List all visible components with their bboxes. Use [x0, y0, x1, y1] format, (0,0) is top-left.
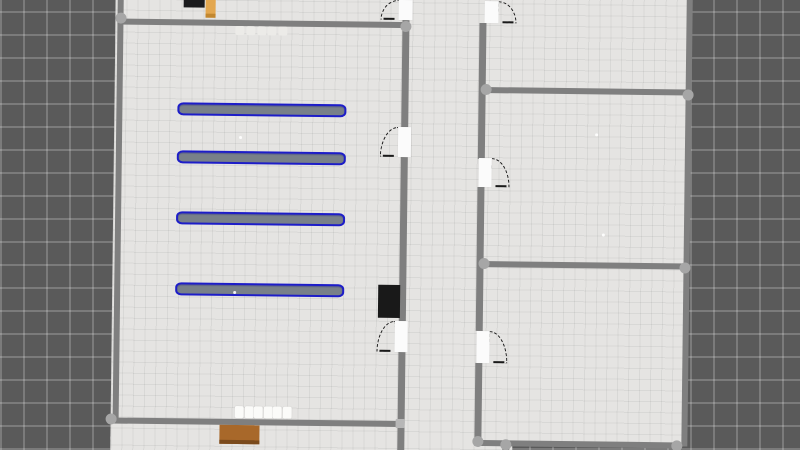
joint-div-mid-right [679, 262, 690, 273]
wood-table[interactable] [219, 425, 259, 444]
door-left-room-lower[interactable] [394, 321, 407, 352]
chair-item[interactable] [273, 406, 282, 418]
floor-speck [233, 291, 236, 294]
wall-corridor-left-c [397, 352, 405, 450]
counter-item[interactable] [267, 26, 276, 35]
floor-speck [239, 136, 242, 139]
joint-bottom-right [671, 440, 682, 450]
orange-plank[interactable] [206, 0, 216, 18]
joint-div-mid-left [478, 258, 489, 269]
shelf-row-3[interactable] [176, 211, 345, 226]
game-map-viewport[interactable] [0, 0, 800, 450]
counter-item[interactable] [246, 26, 255, 35]
chair-item[interactable] [254, 406, 263, 418]
shelf-row-2[interactable] [177, 150, 346, 165]
shelf-row-4[interactable] [175, 282, 344, 297]
chair-item[interactable] [283, 407, 292, 419]
joint-bottom-stub [500, 439, 511, 450]
joint-top-left [115, 13, 126, 24]
joint-t-junction [396, 419, 405, 428]
wall-corridor-left-a [401, 20, 409, 127]
counter-item[interactable] [278, 26, 287, 35]
door-corridor-top-left[interactable] [399, 0, 413, 20]
door-right-room-lower[interactable] [476, 331, 489, 363]
wall-corridor-right-c [474, 363, 482, 442]
chair-item[interactable] [235, 406, 244, 418]
dark-doorway[interactable] [378, 285, 400, 318]
chair-item[interactable] [264, 406, 273, 418]
floor-speck [595, 133, 598, 136]
door-corridor-top-right[interactable] [484, 1, 498, 23]
door-right-room-upper[interactable] [478, 158, 491, 187]
shelf-row-1[interactable] [177, 102, 346, 117]
joint-top-corridor [400, 21, 411, 32]
joint-div-top-right [683, 89, 694, 100]
door-left-room-mid[interactable] [398, 127, 411, 157]
floor-speck [602, 233, 605, 236]
joint-bottom-left [106, 413, 117, 424]
building-floor-plan [110, 0, 690, 450]
counter-item[interactable] [257, 26, 266, 35]
joint-corridor-bend [472, 436, 483, 447]
black-crate[interactable] [184, 0, 205, 8]
counter-item[interactable] [235, 26, 244, 35]
chair-item[interactable] [245, 406, 254, 418]
joint-div-top-left [481, 84, 492, 95]
